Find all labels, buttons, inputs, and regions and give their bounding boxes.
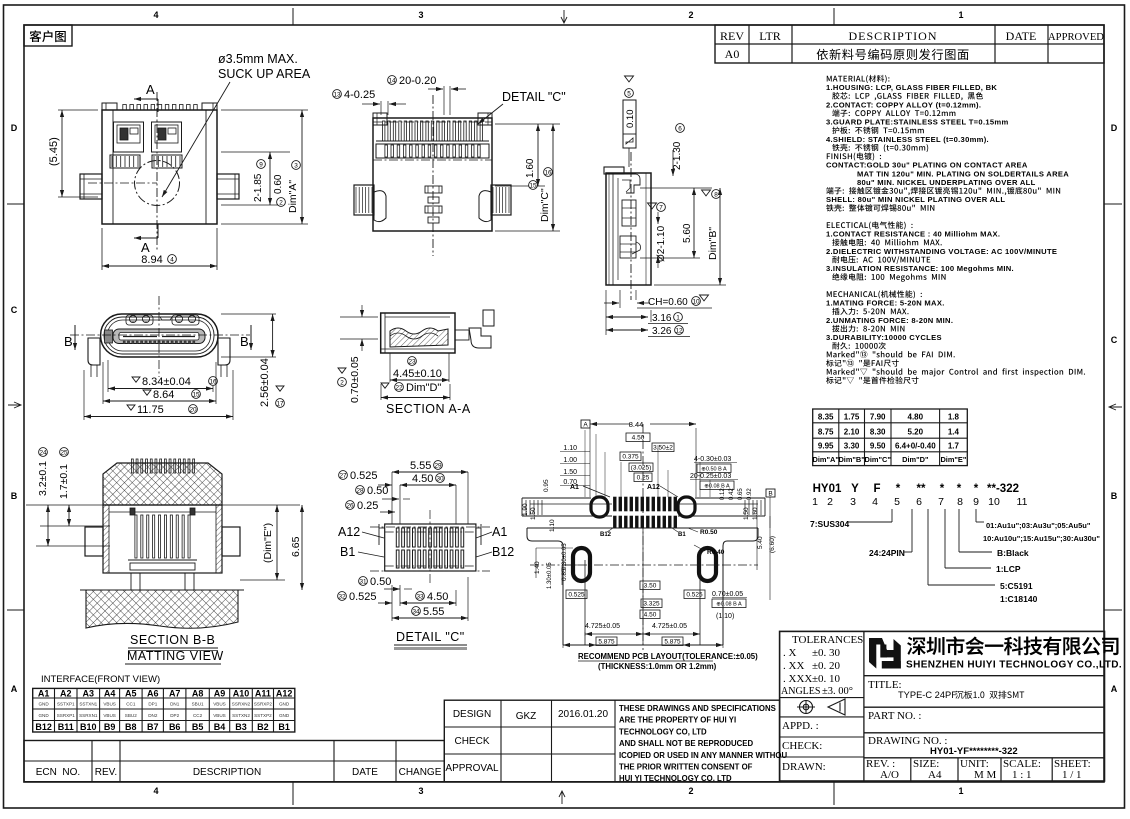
svg-text:4.SHIELD: STAINLESS STEEL (t=0: 4.SHIELD: STAINLESS STEEL (t=0.30mm). xyxy=(826,135,989,144)
svg-text:6: 6 xyxy=(916,496,922,508)
svg-text:30: 30 xyxy=(436,475,444,482)
svg-text:DN1: DN1 xyxy=(170,702,180,707)
svg-text:A11: A11 xyxy=(255,689,271,699)
svg-text:31: 31 xyxy=(359,578,367,585)
svg-text:HY01: HY01 xyxy=(813,483,842,495)
svg-text:DETAIL "C": DETAIL "C" xyxy=(502,90,566,104)
svg-text:2.10: 2.10 xyxy=(844,428,860,437)
svg-text:SSTXP1: SSTXP1 xyxy=(57,702,75,707)
svg-text:GKZ: GKZ xyxy=(516,711,537,722)
svg-text:±3. 00°: ±3. 00° xyxy=(822,686,853,697)
svg-text:DRAWN:: DRAWN: xyxy=(782,761,826,773)
svg-text:3.30: 3.30 xyxy=(844,442,860,451)
svg-text:9: 9 xyxy=(259,161,263,168)
svg-text:10: 10 xyxy=(692,298,700,305)
svg-text:ANGLES: ANGLES xyxy=(781,686,820,697)
svg-text:24:24PIN: 24:24PIN xyxy=(869,548,905,558)
svg-text:R0.50: R0.50 xyxy=(700,529,718,536)
svg-text:0.65: 0.65 xyxy=(738,488,744,500)
svg-text:7: 7 xyxy=(938,496,944,508)
svg-text:0.30±0.05: 0.30±0.05 xyxy=(562,543,568,570)
svg-text:9: 9 xyxy=(973,496,979,508)
svg-text:80u" MIN. NICKEL UNDERPLATING: 80u" MIN. NICKEL UNDERPLATING OVER ALL xyxy=(857,178,1036,187)
svg-text:. X: . X xyxy=(783,647,797,659)
svg-text:Dim"D": Dim"D" xyxy=(902,455,929,464)
svg-text:24: 24 xyxy=(39,449,47,456)
svg-text:2.CONTACT: COPPY ALLOY (t=0.12: 2.CONTACT: COPPY ALLOY (t=0.12mm). xyxy=(826,100,981,109)
svg-text:B10: B10 xyxy=(80,722,97,732)
svg-text:25: 25 xyxy=(60,449,68,456)
svg-text:. XXX: . XXX xyxy=(783,673,812,685)
svg-text:3: 3 xyxy=(850,496,856,508)
svg-text:4: 4 xyxy=(872,496,878,508)
svg-text:17: 17 xyxy=(276,400,284,407)
svg-text:5.40: 5.40 xyxy=(757,536,764,549)
svg-text:GND: GND xyxy=(279,702,290,707)
svg-text:TOLERANCES: TOLERANCES xyxy=(792,634,863,646)
svg-text:DETAIL "C": DETAIL "C" xyxy=(396,630,465,644)
svg-text:5:C5191: 5:C5191 xyxy=(1000,581,1033,591)
svg-text:4.725±0.05: 4.725±0.05 xyxy=(585,623,620,630)
svg-text:THESE DRAWINGS AND SPECIFICATI: THESE DRAWINGS AND SPECIFICATIONS xyxy=(619,704,776,713)
svg-text:0.525: 0.525 xyxy=(349,591,377,603)
svg-text:DATE: DATE xyxy=(1006,29,1037,43)
svg-text:SHELL: 80u" MIN NICKEL PLATING: SHELL: 80u" MIN NICKEL PLATING OVER ALL xyxy=(826,195,1005,204)
svg-text:AND SHALL NOT BE REPRODUCED: AND SHALL NOT BE REPRODUCED xyxy=(619,739,754,748)
svg-text:A/O: A/O xyxy=(880,769,899,781)
svg-text:CH=0.60: CH=0.60 xyxy=(648,297,688,308)
svg-text:(1.10): (1.10) xyxy=(716,613,734,620)
svg-text:4.725±0.05: 4.725±0.05 xyxy=(652,623,687,630)
svg-text:14: 14 xyxy=(388,77,396,84)
svg-text:9.50: 9.50 xyxy=(870,442,886,451)
svg-text:1.00: 1.00 xyxy=(563,457,577,464)
svg-text:Dim"B": Dim"B" xyxy=(838,455,865,464)
svg-text:1.60: 1.60 xyxy=(752,507,759,520)
svg-text:SBU2: SBU2 xyxy=(125,713,137,718)
svg-text:Dim"E": Dim"E" xyxy=(940,455,966,464)
svg-text:Dim"A": Dim"A" xyxy=(287,180,299,213)
svg-text:8: 8 xyxy=(714,191,718,198)
svg-text:APPD. :: APPD. : xyxy=(782,720,819,732)
svg-text:RECOMMEND PCB LAYOUT(TOLERAN: RECOMMEND PCB LAYOUT(TOLERANCE:±0.05) xyxy=(578,652,758,661)
svg-text:(Dim"E"): (Dim"E") xyxy=(262,523,274,563)
svg-text:3.GUARD PLATE:STAINLESS STEEL: 3.GUARD PLATE:STAINLESS STEEL T=0.15mm xyxy=(826,118,1009,127)
svg-text:SSRXP2: SSRXP2 xyxy=(254,702,273,707)
svg-text:A1: A1 xyxy=(492,525,507,539)
svg-text:1.10: 1.10 xyxy=(563,445,577,452)
svg-text:2-1.85: 2-1.85 xyxy=(253,173,264,202)
svg-text:SSRXP1: SSRXP1 xyxy=(57,713,76,718)
svg-text:3: 3 xyxy=(418,786,423,796)
svg-text:0.42: 0.42 xyxy=(729,488,735,500)
svg-text:3: 3 xyxy=(294,162,298,169)
svg-text:SSTXP2: SSTXP2 xyxy=(254,713,272,718)
svg-text:4.50: 4.50 xyxy=(644,611,657,618)
svg-text:20-0.20: 20-0.20 xyxy=(399,75,436,87)
svg-text:6.4+0/-0.40: 6.4+0/-0.40 xyxy=(895,442,936,451)
svg-text:A1: A1 xyxy=(38,689,50,699)
svg-text:0.375: 0.375 xyxy=(622,453,639,460)
svg-text:0.95: 0.95 xyxy=(543,479,550,492)
svg-text:*: * xyxy=(974,483,979,495)
svg-text:1.CONTACT RESISTANCE : 40 Mill: 1.CONTACT RESISTANCE : 40 Milliohm MAX. xyxy=(826,230,1000,239)
svg-text:1: 1 xyxy=(958,786,963,796)
svg-text:1 : 1: 1 : 1 xyxy=(1012,769,1032,781)
svg-text:1.HOUSING: LCP, GLASS FIBER FI: 1.HOUSING: LCP, GLASS FIBER FILLED, BK xyxy=(826,83,997,92)
svg-text:33: 33 xyxy=(416,593,424,600)
svg-text:1.90: 1.90 xyxy=(522,503,529,516)
svg-text:1.40: 1.40 xyxy=(534,561,541,574)
svg-text:⊕0.50 B A: ⊕0.50 B A xyxy=(701,466,727,472)
svg-text:4-0.25: 4-0.25 xyxy=(344,89,375,101)
svg-text:A12: A12 xyxy=(647,484,660,491)
svg-text:23: 23 xyxy=(408,358,416,365)
svg-text:2: 2 xyxy=(279,199,283,206)
svg-text:APPROVAL: APPROVAL xyxy=(445,763,499,774)
svg-text:16: 16 xyxy=(544,169,552,176)
svg-text:1.8: 1.8 xyxy=(948,413,960,422)
svg-text:±0. 20: ±0. 20 xyxy=(812,660,841,672)
svg-text:1.MATING FORCE: 5-20N MAX.: 1.MATING FORCE: 5-20N MAX. xyxy=(826,299,945,308)
svg-text:0.525: 0.525 xyxy=(686,591,703,598)
svg-text:9.95: 9.95 xyxy=(818,442,834,451)
svg-text:1.4: 1.4 xyxy=(948,428,960,437)
svg-text:0.25: 0.25 xyxy=(357,500,378,512)
svg-text:B8: B8 xyxy=(125,722,137,732)
svg-text:27: 27 xyxy=(339,472,347,479)
svg-text:11: 11 xyxy=(1017,496,1028,508)
svg-text:THE PRIOR WRITTEN CONSENT OF: THE PRIOR WRITTEN CONSENT OF xyxy=(619,763,753,772)
svg-text:15: 15 xyxy=(529,182,537,189)
svg-text:B7: B7 xyxy=(147,722,159,732)
svg-text:B1: B1 xyxy=(340,545,355,559)
svg-text:A12: A12 xyxy=(276,689,293,699)
svg-text:20-0.25±0.03: 20-0.25±0.03 xyxy=(690,473,731,480)
svg-text:SHENZHEN HUIYI TECHNOLOGY CO.,: SHENZHEN HUIYI TECHNOLOGY CO.,LTD. xyxy=(906,660,1122,671)
svg-text:ECN NO.: ECN NO. xyxy=(36,767,80,778)
svg-text:TECHNOLOGY CO, LTD: TECHNOLOGY CO, LTD xyxy=(619,727,707,736)
svg-text:*: * xyxy=(896,483,901,495)
svg-text:4.50: 4.50 xyxy=(427,591,448,603)
svg-text:SSTXN1: SSTXN1 xyxy=(79,702,97,707)
svg-text:B: B xyxy=(768,491,772,498)
svg-text:3.325: 3.325 xyxy=(643,600,660,607)
svg-text:4-0.30±0.03: 4-0.30±0.03 xyxy=(694,456,731,463)
svg-text:INTERFACE(FRONT VIEW): INTERFACE(FRONT VIEW) xyxy=(41,674,160,685)
svg-text:3.DURABILITY:10000 CYCLES: 3.DURABILITY:10000 CYCLES xyxy=(826,333,942,342)
svg-text:DN2: DN2 xyxy=(148,713,158,718)
svg-text:7.90: 7.90 xyxy=(870,413,886,422)
svg-text:A2: A2 xyxy=(60,689,72,699)
svg-text:3.50±2: 3.50±2 xyxy=(653,444,673,451)
svg-text:CHECK:: CHECK: xyxy=(782,740,822,752)
svg-text:1: 1 xyxy=(812,496,818,508)
svg-text:SUCK UP AREA: SUCK UP AREA xyxy=(218,67,311,81)
svg-text:SSTXN2: SSTXN2 xyxy=(232,713,250,718)
svg-text:0.60: 0.60 xyxy=(273,174,284,194)
svg-text:B11: B11 xyxy=(58,722,74,732)
svg-text:3.16: 3.16 xyxy=(652,313,672,324)
svg-text:VBUS: VBUS xyxy=(213,713,226,718)
svg-text:HUI YI TECHNOLOGY CO. LTD: HUI YI TECHNOLOGY CO. LTD xyxy=(619,774,732,783)
svg-text:01:Au1u";03:Au3u";05:Au5u": 01:Au1u";03:Au3u";05:Au5u" xyxy=(986,521,1091,530)
svg-text:5.875: 5.875 xyxy=(664,638,681,645)
svg-text:M M: M M xyxy=(974,769,997,781)
svg-text:0.92: 0.92 xyxy=(747,488,753,500)
svg-text:0.25: 0.25 xyxy=(637,474,650,481)
svg-text:7: 7 xyxy=(659,204,663,211)
svg-text:0.70±0.05: 0.70±0.05 xyxy=(349,356,361,403)
svg-text:A10: A10 xyxy=(233,689,250,699)
svg-text:SECTION B-B: SECTION B-B xyxy=(130,633,215,647)
svg-text:8.64: 8.64 xyxy=(153,389,174,401)
svg-text:4: 4 xyxy=(153,10,158,20)
svg-text:4.50: 4.50 xyxy=(632,434,645,441)
svg-text:8.75: 8.75 xyxy=(818,428,834,437)
svg-text:Dim"C": Dim"C" xyxy=(865,455,892,464)
svg-text:Dim"D": Dim"D" xyxy=(406,382,441,394)
svg-text:2.DIELECTRIC WITHSTANDING VOLT: 2.DIELECTRIC WITHSTANDING VOLTAGE: AC 10… xyxy=(826,247,1057,256)
svg-text:12: 12 xyxy=(675,327,683,334)
svg-text:B5: B5 xyxy=(192,722,204,732)
svg-text:3.26: 3.26 xyxy=(652,326,672,337)
svg-text:MATTING VIEW: MATTING VIEW xyxy=(127,649,224,663)
svg-text:B3: B3 xyxy=(235,722,247,732)
svg-text:GND: GND xyxy=(38,702,49,707)
svg-text:A6: A6 xyxy=(147,689,159,699)
svg-text:C: C xyxy=(11,305,18,315)
svg-text:A: A xyxy=(141,240,150,255)
svg-text:VBUS: VBUS xyxy=(213,702,226,707)
svg-text:ICOPIED OR USED IN ANY MANNER: ICOPIED OR USED IN ANY MANNER WITHOU xyxy=(619,751,787,760)
svg-text:11.75: 11.75 xyxy=(137,404,164,416)
svg-text:22: 22 xyxy=(395,384,403,391)
svg-text:B: B xyxy=(11,491,18,501)
svg-text:4: 4 xyxy=(153,786,158,796)
svg-text:0.70±0.05: 0.70±0.05 xyxy=(712,591,743,598)
svg-text:1: 1 xyxy=(958,10,963,20)
svg-text:7:SUS304: 7:SUS304 xyxy=(810,519,849,529)
svg-text:B1: B1 xyxy=(678,532,686,538)
svg-text:ø3.5mm MAX.: ø3.5mm MAX. xyxy=(218,52,298,66)
svg-text:SSRXN2: SSRXN2 xyxy=(232,702,251,707)
svg-text:1.7±0.1: 1.7±0.1 xyxy=(58,464,70,499)
svg-text:B:Black: B:Black xyxy=(997,548,1029,558)
svg-text:2-1.30: 2-1.30 xyxy=(672,141,683,170)
svg-text:A: A xyxy=(1111,684,1118,694)
svg-text:A8: A8 xyxy=(192,689,204,699)
svg-text:3.2±0.1: 3.2±0.1 xyxy=(37,461,49,496)
svg-text:13: 13 xyxy=(333,91,341,98)
svg-text:SSRXN1: SSRXN1 xyxy=(79,713,98,718)
svg-text:5: 5 xyxy=(627,90,631,97)
svg-text:±0. 10: ±0. 10 xyxy=(812,673,841,685)
svg-text:A4: A4 xyxy=(104,689,116,699)
svg-text:B1: B1 xyxy=(278,722,290,732)
svg-text:1:C18140: 1:C18140 xyxy=(1000,594,1038,604)
svg-text:F: F xyxy=(873,483,880,495)
svg-text:GND: GND xyxy=(279,713,290,718)
svg-text:0.525: 0.525 xyxy=(568,591,585,598)
svg-text:CHANGE: CHANGE xyxy=(399,767,442,778)
svg-text:DESCRIPTION: DESCRIPTION xyxy=(848,29,937,43)
svg-text:APPROVED: APPROVED xyxy=(1048,32,1104,43)
svg-text:SECTION A-A: SECTION A-A xyxy=(386,402,471,416)
svg-text:0.50: 0.50 xyxy=(370,576,391,588)
svg-text:A7: A7 xyxy=(169,689,181,699)
svg-text:DESCRIPTION: DESCRIPTION xyxy=(193,767,261,778)
svg-text:6: 6 xyxy=(678,125,682,132)
svg-text:GND: GND xyxy=(38,713,49,718)
svg-text:4.45±0.10: 4.45±0.10 xyxy=(393,368,442,380)
svg-text:3: 3 xyxy=(418,10,423,20)
svg-text:A1: A1 xyxy=(570,484,579,491)
svg-text:1.50: 1.50 xyxy=(743,507,750,520)
svg-text:5.55: 5.55 xyxy=(410,460,431,472)
svg-text:2: 2 xyxy=(688,10,693,20)
svg-text:A12: A12 xyxy=(338,525,360,539)
svg-text:B6: B6 xyxy=(169,722,181,732)
svg-text:29: 29 xyxy=(434,462,442,469)
svg-text:15: 15 xyxy=(192,391,200,398)
svg-text:**-322: **-322 xyxy=(987,483,1019,495)
svg-text:34: 34 xyxy=(412,608,420,615)
svg-text:Dim"B": Dim"B" xyxy=(707,227,719,260)
svg-text:1.75: 1.75 xyxy=(844,413,860,422)
svg-text:VBUS: VBUS xyxy=(103,713,116,718)
svg-text:Dim"C": Dim"C" xyxy=(539,188,551,222)
svg-text:**: ** xyxy=(917,483,926,495)
svg-text:DESIGN: DESIGN xyxy=(453,709,491,720)
svg-text:TITLE:: TITLE: xyxy=(868,679,902,691)
svg-text:REV.: REV. xyxy=(95,767,117,778)
svg-text:0.525: 0.525 xyxy=(350,470,378,482)
svg-text:A3: A3 xyxy=(83,689,95,699)
svg-text:A: A xyxy=(11,684,18,694)
svg-text:2: 2 xyxy=(827,496,833,508)
svg-text:*: * xyxy=(957,483,962,495)
svg-text:±0. 30: ±0. 30 xyxy=(812,647,841,659)
svg-text:A5: A5 xyxy=(125,689,137,699)
svg-text:5.60: 5.60 xyxy=(682,223,693,243)
svg-text:4: 4 xyxy=(170,256,174,263)
svg-text:1.50: 1.50 xyxy=(563,469,577,476)
svg-text:(3.025): (3.025) xyxy=(631,464,652,471)
svg-text:2016.01.20: 2016.01.20 xyxy=(558,709,608,720)
svg-text:4.80: 4.80 xyxy=(908,413,924,422)
svg-text:1: 1 xyxy=(676,314,680,321)
svg-text:DP2: DP2 xyxy=(170,713,179,718)
svg-text:LTR: LTR xyxy=(759,29,781,43)
svg-text:4.50: 4.50 xyxy=(412,473,433,485)
svg-text:CC1: CC1 xyxy=(126,702,136,707)
svg-text:D: D xyxy=(11,123,18,133)
svg-text:B: B xyxy=(1111,491,1118,501)
svg-text:32: 32 xyxy=(338,593,346,600)
svg-text:B2: B2 xyxy=(257,722,269,732)
svg-text:0.10: 0.10 xyxy=(625,110,636,129)
svg-text:5.20: 5.20 xyxy=(908,428,924,437)
svg-text:R0.40: R0.40 xyxy=(707,549,725,556)
svg-text:2.UNMATING FORCE: 8-20N MIN.: 2.UNMATING FORCE: 8-20N MIN. xyxy=(826,316,953,325)
svg-text:Dim"A": Dim"A" xyxy=(813,455,840,464)
svg-text:8.30: 8.30 xyxy=(870,428,886,437)
svg-text:8.94: 8.94 xyxy=(141,254,162,266)
svg-text:Y: Y xyxy=(851,483,859,495)
svg-text:A: A xyxy=(146,82,155,97)
svg-text:D: D xyxy=(1111,123,1118,133)
svg-text:B: B xyxy=(64,334,73,349)
svg-text:⊕0.08 B A: ⊕0.08 B A xyxy=(704,483,730,489)
svg-text:PART NO. :: PART NO. : xyxy=(868,710,921,722)
svg-text:26: 26 xyxy=(346,502,354,509)
svg-text:A4: A4 xyxy=(928,769,942,781)
svg-text:5.55: 5.55 xyxy=(423,606,444,618)
svg-text:B12: B12 xyxy=(492,545,514,559)
svg-text:B4: B4 xyxy=(214,722,226,732)
svg-text:8.35: 8.35 xyxy=(818,413,834,422)
svg-text:DATE: DATE xyxy=(352,767,378,778)
svg-text:B12: B12 xyxy=(35,722,52,732)
svg-text:1:LCP: 1:LCP xyxy=(996,564,1021,574)
svg-text:3.50: 3.50 xyxy=(644,582,657,589)
svg-text:(5.45): (5.45) xyxy=(48,137,60,166)
svg-text:1.30±0.05: 1.30±0.05 xyxy=(547,562,553,589)
svg-text:1.10: 1.10 xyxy=(549,519,556,532)
svg-text:6.65: 6.65 xyxy=(290,536,302,557)
svg-text:10:Au10u";15:Au15u";30:Au30u": 10:Au10u";15:Au15u";30:Au30u" xyxy=(983,534,1100,543)
svg-text:A9: A9 xyxy=(214,689,226,699)
svg-text:B12: B12 xyxy=(600,532,612,538)
svg-text:1.7: 1.7 xyxy=(948,442,960,451)
svg-text:CHECK: CHECK xyxy=(454,736,489,747)
svg-text:SBU1: SBU1 xyxy=(192,702,204,707)
svg-text:20: 20 xyxy=(189,406,197,413)
svg-text:2: 2 xyxy=(340,379,344,386)
svg-text:⊕0.08 B A: ⊕0.08 B A xyxy=(716,601,742,607)
svg-text:5.875: 5.875 xyxy=(598,638,615,645)
svg-text:5: 5 xyxy=(894,496,900,508)
svg-text:HY01-YF********-322: HY01-YF********-322 xyxy=(930,746,1018,757)
svg-text:B: B xyxy=(240,334,249,349)
svg-text:VBUS: VBUS xyxy=(103,702,116,707)
svg-text:1 / 1: 1 / 1 xyxy=(1062,769,1082,781)
svg-text:28: 28 xyxy=(356,487,364,494)
svg-text:ARE THE PROPERTY OF HUI YI: ARE THE PROPERTY OF HUI YI xyxy=(619,716,736,725)
svg-text:10: 10 xyxy=(988,496,1000,508)
svg-text:2: 2 xyxy=(688,786,693,796)
svg-text:1.60: 1.60 xyxy=(525,158,536,178)
svg-text:8: 8 xyxy=(957,496,963,508)
svg-text:3.INSULATION RESISTANCE: 100 M: 3.INSULATION RESISTANCE: 100 Megohms MIN… xyxy=(826,264,1014,273)
svg-text:8.44: 8.44 xyxy=(629,420,644,429)
svg-text:TYPE-C 24PF: TYPE-C 24PF xyxy=(898,690,959,700)
svg-text:A: A xyxy=(583,422,588,429)
svg-text:1.50: 1.50 xyxy=(530,507,537,520)
svg-text:0.50: 0.50 xyxy=(367,485,388,497)
svg-text:REV: REV xyxy=(720,29,744,43)
svg-text:. XX: . XX xyxy=(783,660,804,672)
svg-text:(THICKNESS:1.0mm OR 1.2mm): (THICKNESS:1.0mm OR 1.2mm) xyxy=(598,662,717,671)
svg-text:8.34±0.04: 8.34±0.04 xyxy=(142,376,191,388)
svg-text:DP1: DP1 xyxy=(148,702,157,707)
svg-text:2.56±0.04: 2.56±0.04 xyxy=(259,358,271,407)
svg-text:C: C xyxy=(1111,335,1118,345)
svg-text:B9: B9 xyxy=(104,722,116,732)
svg-text:*: * xyxy=(940,483,945,495)
svg-text:A0: A0 xyxy=(725,47,740,61)
